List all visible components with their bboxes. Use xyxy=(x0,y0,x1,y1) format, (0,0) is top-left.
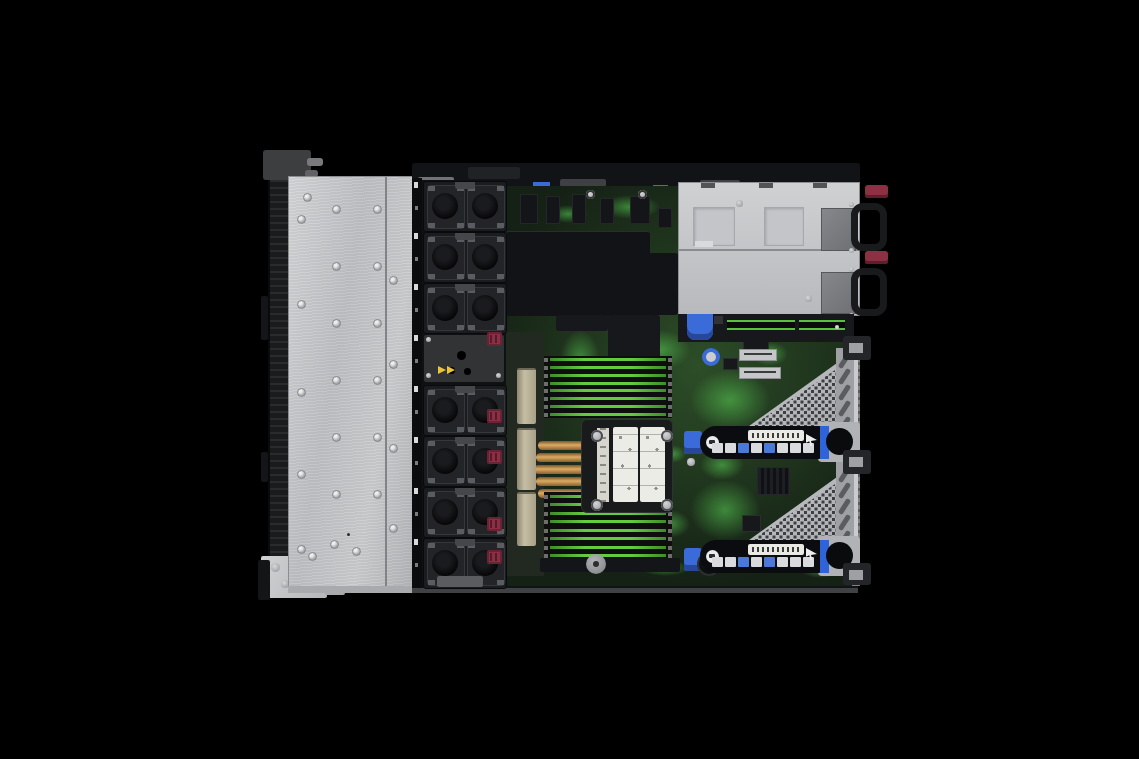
dimm-latch-end xyxy=(668,397,672,401)
dimm-slot xyxy=(550,546,666,549)
rotor-clip xyxy=(468,223,475,228)
fan-rotor xyxy=(427,185,465,229)
rotor-clip xyxy=(497,543,504,548)
dimm-latch-end xyxy=(668,366,672,370)
fan-handle xyxy=(455,284,475,291)
ear-end-cap xyxy=(258,560,270,600)
rotor-clip xyxy=(428,325,435,330)
psu-screw xyxy=(805,295,812,302)
fan-hub xyxy=(472,397,498,423)
psu-notch xyxy=(701,183,715,188)
cover-bottom-lip xyxy=(288,586,412,593)
cpu-instruction-card xyxy=(613,427,638,502)
fan-led-tick xyxy=(415,512,418,516)
pcie-edge-slot xyxy=(727,320,795,330)
fan-rotor xyxy=(427,287,465,331)
rotor-clip xyxy=(428,186,435,191)
fan-hub xyxy=(472,448,498,474)
dimm-latch-blue xyxy=(684,431,702,454)
dimm-latch-end xyxy=(668,537,672,541)
rotor-clip xyxy=(468,325,475,330)
psu-body-top xyxy=(821,208,856,251)
m2-socket xyxy=(739,349,777,361)
psu-tab xyxy=(695,241,713,247)
blank-screw xyxy=(496,337,501,342)
fan-led-tick xyxy=(414,539,418,545)
rotor-clip xyxy=(428,441,435,446)
rotor-clip xyxy=(457,529,464,534)
psu-release-tab xyxy=(865,185,888,198)
fan-handle xyxy=(455,539,475,546)
photo-canvas xyxy=(0,0,1139,759)
dimm-slot xyxy=(550,389,666,392)
fan-led-tick xyxy=(415,461,418,465)
dimm-slot xyxy=(550,413,666,416)
rotor-clip xyxy=(428,543,435,548)
fan-rotor xyxy=(467,236,505,280)
fan-module xyxy=(423,436,507,487)
dimm-latch-end xyxy=(544,358,548,362)
rotor-clip xyxy=(497,186,504,191)
dimm-slot xyxy=(550,358,666,361)
fan-cage-tab xyxy=(437,576,483,587)
fan-hub xyxy=(432,193,458,219)
board-connector xyxy=(630,196,650,224)
dimm-slot xyxy=(550,405,666,408)
dimm-slot xyxy=(550,520,666,523)
psu-body-bottom xyxy=(821,272,856,314)
fan-hub xyxy=(432,448,458,474)
air-baffle xyxy=(506,231,650,316)
drive-bay-cover xyxy=(288,176,414,590)
fan-led-tick xyxy=(415,206,418,210)
dimm-slot xyxy=(550,382,666,385)
fan-rotor xyxy=(467,185,505,229)
dimm-latch-end xyxy=(544,413,548,417)
dimm-latch-end xyxy=(544,495,548,499)
fan-module xyxy=(423,385,507,436)
rotor-clip xyxy=(428,492,435,497)
fan-module xyxy=(423,181,507,232)
fan-module xyxy=(423,283,507,334)
dimm-latch-end xyxy=(544,503,548,507)
fan-led-tick xyxy=(414,437,418,443)
dimm-latch-end xyxy=(544,382,548,386)
ic-chip xyxy=(742,515,761,532)
rotor-clip xyxy=(468,427,475,432)
chassis-handle xyxy=(468,167,520,179)
fan-hub xyxy=(472,295,498,321)
blank-screw xyxy=(496,373,501,378)
fan-hub xyxy=(472,499,498,525)
fan-hub xyxy=(472,193,498,219)
m2-socket xyxy=(739,367,781,379)
board-connector xyxy=(546,196,560,224)
ear-pin xyxy=(307,158,323,166)
rotor-clip xyxy=(497,492,504,497)
dimm-bank-top xyxy=(544,356,672,418)
fan-rotor xyxy=(427,440,465,484)
dimm-slot xyxy=(550,529,666,532)
rotor-clip xyxy=(428,274,435,279)
fan-rotor xyxy=(467,440,505,484)
cpu-instruction-card xyxy=(640,427,665,502)
dimm-slot xyxy=(550,537,666,540)
rotor-clip xyxy=(497,529,504,534)
fan-led-tick xyxy=(415,563,418,567)
rotor-clip xyxy=(457,478,464,483)
fan-led-tick xyxy=(414,386,418,392)
dimm-latch-end xyxy=(668,529,672,533)
rotor-clip xyxy=(457,325,464,330)
fan-hub xyxy=(432,499,458,525)
rotor-clip xyxy=(468,274,475,279)
dimm-latch-end xyxy=(544,512,548,516)
pcie-latch-blue xyxy=(687,314,713,340)
rotor-clip xyxy=(468,529,475,534)
dimm-latch-end xyxy=(668,413,672,417)
board-screw xyxy=(687,458,695,466)
front-bezel xyxy=(268,152,290,598)
rotor-clip xyxy=(457,427,464,432)
dimm-latch-end xyxy=(544,520,548,524)
fan-hub xyxy=(432,550,458,576)
rotor-clip xyxy=(428,288,435,293)
rotor-clip xyxy=(497,223,504,228)
board-connector xyxy=(658,208,672,228)
fan-handle xyxy=(455,386,475,393)
warning-arrow-icon xyxy=(447,366,455,374)
bezel-latch-bump xyxy=(261,452,268,482)
dimm-latch-end xyxy=(544,374,548,378)
dimm-latch-end xyxy=(668,520,672,524)
board-shadow-strip xyxy=(540,558,680,572)
dimm-latch-end xyxy=(544,397,548,401)
rotor-clip xyxy=(497,288,504,293)
dimm-latch-end xyxy=(544,405,548,409)
rotor-clip xyxy=(497,441,504,446)
fan-led-tick xyxy=(415,257,418,261)
blank-screw xyxy=(426,337,431,342)
thumb-knob xyxy=(697,552,721,576)
board-connector xyxy=(572,194,586,224)
fan-rotor xyxy=(427,389,465,433)
rotor-clip xyxy=(497,274,504,279)
board-connector xyxy=(600,198,614,224)
ear-screw xyxy=(271,563,280,572)
dimm-latch-end xyxy=(668,405,672,409)
rotor-clip xyxy=(497,478,504,483)
fan-handle xyxy=(455,182,475,189)
dimm-slot xyxy=(550,397,666,400)
fan-hub xyxy=(472,550,498,576)
fan-hub xyxy=(432,397,458,423)
dimm-latch-end xyxy=(668,389,672,393)
fan-led-tick xyxy=(414,335,418,341)
fan-bank xyxy=(422,180,506,588)
dimm-latch-end xyxy=(668,382,672,386)
fan-hub xyxy=(472,244,498,270)
blank-hole xyxy=(457,351,466,360)
rotor-clip xyxy=(428,390,435,395)
rotor-clip xyxy=(497,390,504,395)
cover-seam xyxy=(385,177,387,589)
rotor-clip xyxy=(428,427,435,432)
psu-notch xyxy=(759,183,773,188)
cpu-label-strip xyxy=(597,428,609,502)
rotor-clip xyxy=(497,580,504,585)
dimm-latch-end xyxy=(544,389,548,393)
rotor-clip xyxy=(428,478,435,483)
riser-thumbscrew-blue xyxy=(702,348,720,366)
air-baffle-step xyxy=(556,315,608,331)
edge-block xyxy=(714,316,723,324)
rotor-clip xyxy=(428,529,435,534)
dimm-latch-end xyxy=(544,529,548,533)
guide-bar xyxy=(517,492,536,546)
fan-handle xyxy=(455,488,475,495)
rotor-clip xyxy=(428,223,435,228)
board-screw xyxy=(638,190,647,199)
psu-vent-recess xyxy=(764,207,804,246)
dimm-latch-end xyxy=(544,366,548,370)
fan-led-tick xyxy=(415,410,418,414)
rotor-clip xyxy=(497,325,504,330)
dimm-slot xyxy=(550,374,666,377)
blank-hole xyxy=(464,368,471,375)
chipset-heatsink xyxy=(757,467,790,495)
guide-bar xyxy=(517,368,536,424)
fan-module xyxy=(423,487,507,538)
ic-chip xyxy=(723,358,738,370)
fan-handle xyxy=(455,233,475,240)
fan-rotor xyxy=(427,236,465,280)
fan-led-tick xyxy=(414,284,418,290)
fan-module xyxy=(423,232,507,283)
rotor-clip xyxy=(468,478,475,483)
blank-screw xyxy=(426,373,431,378)
bezel-latch-bump xyxy=(261,296,268,340)
psu-bay xyxy=(678,182,860,316)
fan-blank-plate xyxy=(424,335,504,382)
air-baffle-arm xyxy=(648,253,678,315)
rotor-clip xyxy=(428,237,435,242)
dimm-latch-end xyxy=(668,546,672,550)
board-connector xyxy=(520,194,538,224)
dimm-latch-end xyxy=(668,374,672,378)
fan-led-tick xyxy=(414,233,418,239)
dimm-slot xyxy=(550,554,666,557)
rotor-clip xyxy=(457,274,464,279)
psu-release-tab xyxy=(865,251,888,264)
fan-rotor xyxy=(467,287,505,331)
guide-bar xyxy=(517,428,536,490)
board-screw xyxy=(586,190,595,199)
psu-notch xyxy=(813,183,827,188)
fan-rotor xyxy=(467,389,505,433)
fan-rotor xyxy=(467,491,505,535)
fan-handle xyxy=(455,437,475,444)
rotor-clip xyxy=(428,580,435,585)
fan-rotor xyxy=(427,491,465,535)
rotor-clip xyxy=(497,237,504,242)
dimm-slot xyxy=(550,366,666,369)
warning-arrow-icon xyxy=(438,366,446,374)
fan-led-tick xyxy=(415,359,418,363)
rotor-clip xyxy=(497,427,504,432)
psu-screw xyxy=(736,200,743,207)
fan-hub xyxy=(432,295,458,321)
fan-status-strip xyxy=(412,178,422,588)
rear-wall-strip xyxy=(852,348,860,586)
edge-dot xyxy=(835,325,839,329)
rotor-clip xyxy=(457,223,464,228)
dimm-latch-end xyxy=(544,537,548,541)
fan-led-tick xyxy=(414,488,418,494)
dimm-latch-end xyxy=(668,358,672,362)
fan-led-tick xyxy=(415,308,418,312)
dimm-latch-end xyxy=(544,546,548,550)
rubber-grommet xyxy=(586,554,606,574)
fan-led-tick xyxy=(414,182,418,188)
fan-hub xyxy=(432,244,458,270)
